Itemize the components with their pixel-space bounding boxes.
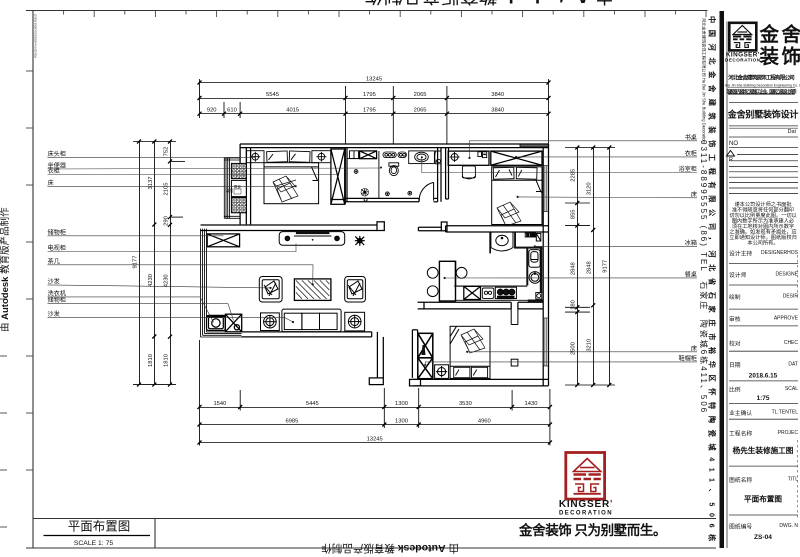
svg-text:1810: 1810 [148,354,154,367]
svg-text:平面布置图: 平面布置图 [68,520,131,534]
svg-text:1300: 1300 [395,401,408,407]
svg-text:金舍装饰 只为别墅而生。: 金舍装饰 只为别墅而生。 [518,522,666,538]
svg-text:KINGSER': KINGSER' [559,499,613,510]
svg-text:工程名称: 工程名称 [729,430,752,438]
svg-text:装饰: 装饰 [759,45,800,68]
svg-text:920: 920 [207,108,217,114]
svg-text:浴室柜: 浴室柜 [678,165,697,173]
svg-text:4230: 4230 [164,274,170,287]
svg-text:Dat: Dat [788,129,797,135]
svg-text:He Bei Jin She Building Decora: He Bei Jin She Building Decoration Engin… [720,83,800,87]
svg-text:河北金舍建筑装饰工程有限公司: 河北金舍建筑装饰工程有限公司 [728,73,795,81]
svg-text:2018.6.15: 2018.6.15 [749,373,778,380]
svg-text:3840: 3840 [491,108,504,114]
svg-text:鞋帽柜: 鞋帽柜 [678,354,697,362]
svg-text:NO: NO [729,141,738,147]
svg-text:储物柜: 储物柜 [48,296,67,304]
svg-text:5545: 5545 [266,92,279,98]
svg-text:3137: 3137 [148,177,154,190]
svg-text:图纸编号: 图纸编号 [729,523,752,531]
svg-text:DESIGNE: DESIGNE [775,272,798,278]
svg-text:1795: 1795 [363,92,376,98]
svg-text:床头柜: 床头柜 [48,150,67,158]
svg-text:1300: 1300 [395,418,408,424]
svg-text:金舍: 金舍 [759,23,800,46]
svg-text:0311-88995555 (86) TEL 石家庄 陶: 0311-88995555 (86) TEL 石家庄 陶瓷城6栋411、506 [699,140,709,414]
svg-text:设计主持: 设计主持 [729,250,752,258]
svg-text:2065: 2065 [414,108,427,114]
svg-text:校对: 校对 [729,340,741,348]
svg-text:衣柜: 衣柜 [685,149,697,157]
svg-text:TITL: TITL [788,477,798,483]
svg-text:180: 180 [571,300,577,310]
svg-text:4015: 4015 [286,108,299,114]
svg-text:4960: 4960 [478,418,491,424]
svg-text:沙发: 沙发 [48,277,60,285]
svg-text:2848: 2848 [586,261,592,274]
svg-text:13245: 13245 [367,436,383,442]
svg-text:5445: 5445 [306,401,319,407]
svg-text:床: 床 [691,344,697,352]
svg-text:2500: 2500 [571,342,577,355]
svg-text:3530: 3530 [459,401,472,407]
svg-text:ZS-04: ZS-04 [754,534,772,541]
svg-text:DESIGNERHOS: DESIGNERHOS [761,250,799,256]
svg-text:茶几: 茶几 [48,257,60,265]
svg-text:书桌: 书桌 [685,133,697,141]
svg-text:CHEC: CHEC [784,340,799,346]
svg-text:餐桌: 餐桌 [685,270,697,278]
svg-text:2285: 2285 [571,169,577,182]
svg-text:波打: 波打 [226,188,234,193]
svg-text:PRODUCED BY AN AUTODESK EDUCAT: PRODUCED BY AN AUTODESK EDUCATIONAL PROD… [34,14,38,58]
svg-text:R: R [729,157,733,163]
svg-text:APPROVE: APPROVE [774,316,799,322]
svg-text:2105: 2105 [164,183,170,196]
svg-text:TL:TENTEL: TL:TENTEL [772,410,799,416]
svg-text:绘制: 绘制 [729,293,741,301]
svg-text:中国河北金舍建筑装饰工程有限公司，河北省石家庄市裕华区怀特陶: 中国河北金舍建筑装饰工程有限公司，河北省石家庄市裕华区怀特陶瓷城411、506栋 [708,16,717,548]
svg-text:日期: 日期 [729,362,741,369]
svg-text:9177: 9177 [603,260,609,273]
svg-text:4230: 4230 [148,274,154,287]
svg-text:由 Autodesk 教育版产品制作: 由 Autodesk 教育版产品制作 [321,542,459,555]
svg-text:PROJEC: PROJEC [778,430,799,436]
svg-text:6985: 6985 [285,418,298,424]
svg-text:洗衣机: 洗衣机 [48,289,67,297]
svg-text:由 Autodesk 教育版产品制作: 由 Autodesk 教育版产品制作 [0,207,11,332]
svg-text:图纸名称: 图纸名称 [729,476,752,484]
svg-text:储物柜: 储物柜 [48,228,67,236]
svg-text:杨先生装修施工图: 杨先生装修施工图 [733,445,794,455]
svg-text:平面布置图: 平面布置图 [744,494,782,504]
svg-text:审核: 审核 [729,315,741,323]
svg-text:SCAL: SCAL [785,386,798,392]
svg-text:3840: 3840 [491,92,504,98]
svg-text:1430: 1430 [525,401,538,407]
svg-text:290: 290 [164,216,170,226]
svg-text:冰箱: 冰箱 [685,239,697,247]
svg-text:比例: 比例 [729,386,741,394]
svg-text:由 Autodesk 教育版产品制作: 由 Autodesk 教育版产品制作 [365,0,614,7]
svg-text:DWG. N: DWG. N [779,523,798,529]
svg-text:电视柜: 电视柜 [48,244,67,252]
svg-text:13245: 13245 [366,77,382,83]
svg-text:9177: 9177 [133,256,139,269]
svg-text:DESIR: DESIR [783,294,799,300]
svg-text:床: 床 [691,190,697,198]
svg-text:752: 752 [164,147,170,157]
svg-text:本公司所有。: 本公司所有。 [747,239,778,247]
svg-text:2848: 2848 [571,262,577,275]
svg-text:DAT: DAT [788,362,798,368]
svg-text:3120: 3120 [586,182,592,195]
svg-text:2065: 2065 [414,92,427,98]
svg-text:SCALE 1: 75: SCALE 1: 75 [74,540,114,547]
svg-text:金舍别墅装饰设计: 金舍别墅装饰设计 [727,109,799,120]
svg-text:1:75: 1:75 [757,395,770,402]
svg-text:业主确认: 业主确认 [729,409,752,417]
svg-text:河北金舍建筑装饰工程有限公司 He Bei Jin She: 河北金舍建筑装饰工程有限公司 He Bei Jin She Building D… [701,18,708,144]
svg-text:DECORATION: DECORATION [725,58,761,63]
svg-text:1810: 1810 [164,354,170,367]
svg-text:设计师: 设计师 [729,271,747,279]
svg-text:沙发: 沙发 [48,310,60,318]
svg-text:1540: 1540 [213,401,226,407]
svg-text:3210: 3210 [586,339,592,352]
svg-text:DECORATION: DECORATION [559,511,613,517]
svg-text:855: 855 [571,209,577,219]
svg-text:床: 床 [48,179,54,187]
svg-text:1795: 1795 [363,108,376,114]
svg-text:衣柜: 衣柜 [48,167,60,175]
svg-text:610: 610 [227,108,237,114]
